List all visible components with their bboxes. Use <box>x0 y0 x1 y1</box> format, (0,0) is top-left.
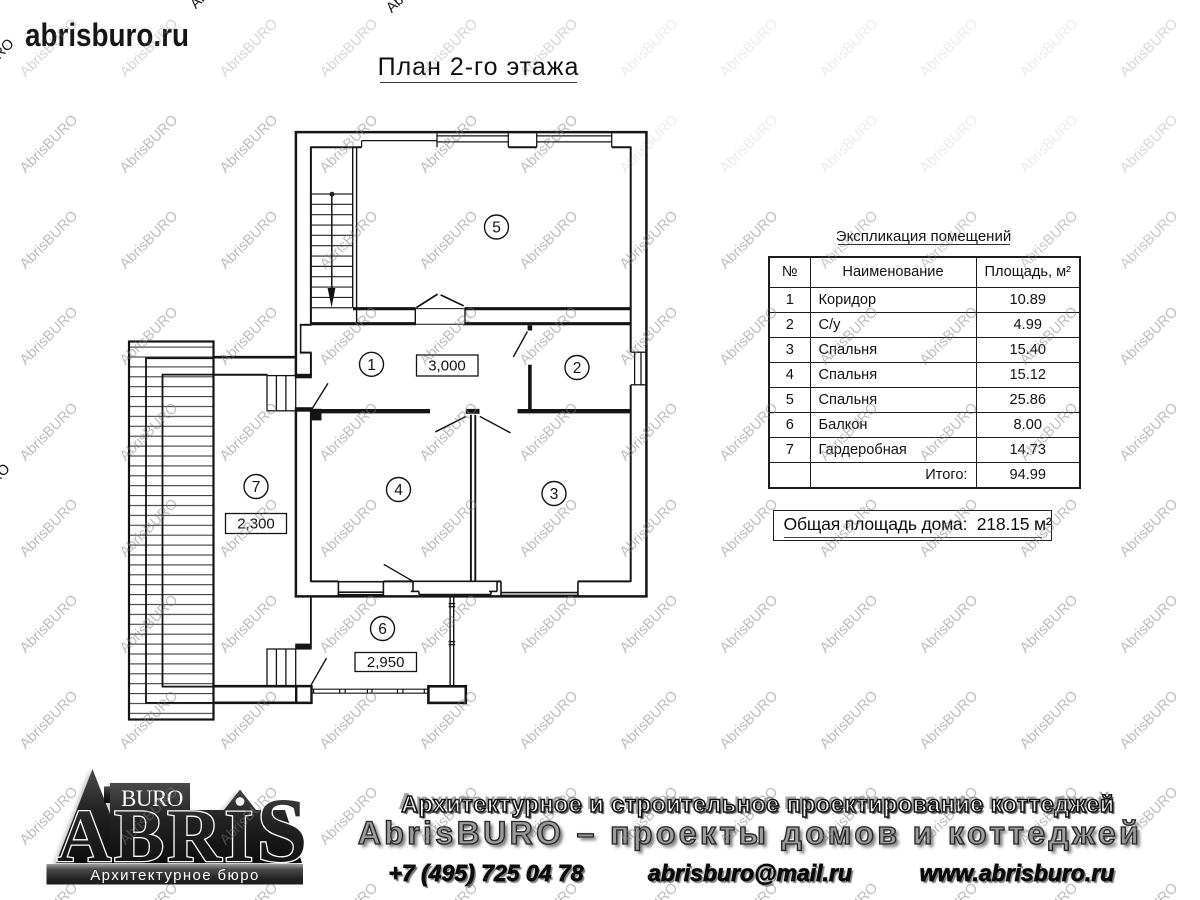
svg-text:Архитектурное бюро: Архитектурное бюро <box>90 867 259 884</box>
